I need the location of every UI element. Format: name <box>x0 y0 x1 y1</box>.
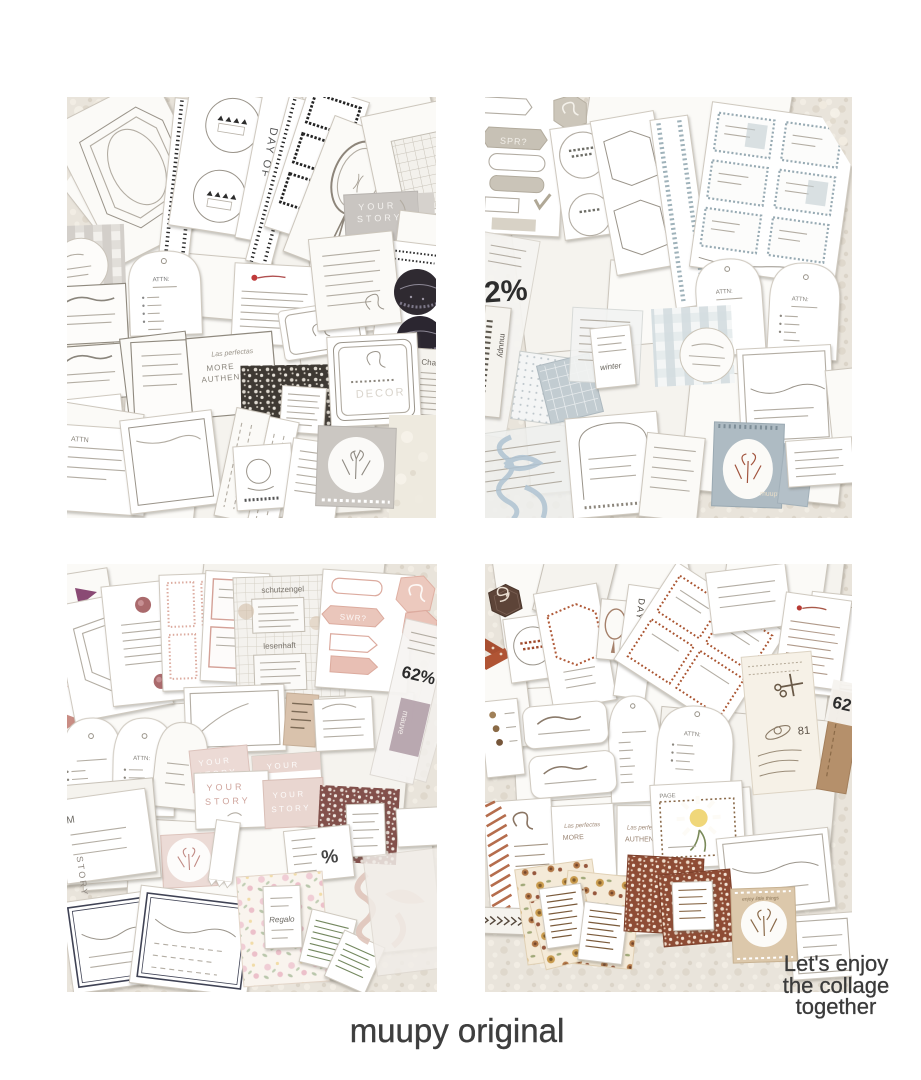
svg-text:PAGE: PAGE <box>659 793 676 800</box>
svg-text:M: M <box>67 814 76 826</box>
svg-text:SPR?: SPR? <box>500 136 528 147</box>
svg-text:ATTN:: ATTN: <box>133 756 150 762</box>
svg-text:YOUR: YOUR <box>358 200 396 212</box>
svg-text:ATTN:: ATTN: <box>684 731 702 738</box>
svg-text:schutzengel: schutzengel <box>261 584 304 594</box>
svg-text:YOUR: YOUR <box>206 782 244 793</box>
svg-text:ATTN: ATTN <box>71 436 89 444</box>
svg-text:SWR?: SWR? <box>340 612 368 623</box>
svg-text:%: % <box>320 846 339 869</box>
svg-text:Regalo: Regalo <box>269 915 295 925</box>
svg-text:STORY: STORY <box>205 795 251 807</box>
svg-text:ATTN:: ATTN: <box>152 277 169 284</box>
svg-text:MORE: MORE <box>563 834 585 842</box>
svg-text:lesenhaft: lesenhaft <box>263 641 297 651</box>
svg-text:ATTN:: ATTN: <box>716 289 734 296</box>
svg-text:ATTN:: ATTN: <box>792 296 810 303</box>
svg-text:YOUR: YOUR <box>272 789 306 800</box>
svg-text:2%: 2% <box>485 274 529 310</box>
svg-text:81: 81 <box>797 725 810 738</box>
svg-text:Cha: Cha <box>421 358 436 368</box>
svg-text:62: 62 <box>831 693 852 716</box>
